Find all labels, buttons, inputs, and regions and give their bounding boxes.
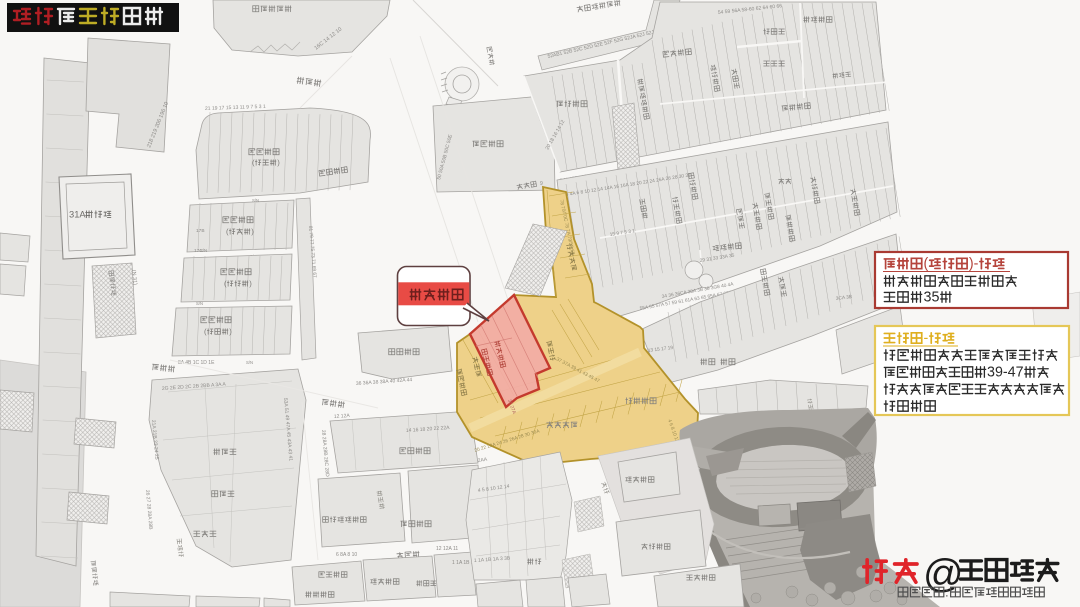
svg-text:)-: )- xyxy=(969,256,979,272)
svg-text:(: ( xyxy=(226,227,229,236)
svg-text:(: ( xyxy=(204,327,207,336)
svg-text::: : xyxy=(945,584,949,599)
svg-text:(: ( xyxy=(224,279,227,288)
svg-text:17B: 17B xyxy=(196,228,205,234)
svg-text:31A: 31A xyxy=(69,209,86,219)
svg-text:S/N: S/N xyxy=(246,360,253,365)
svg-text:(: ( xyxy=(252,158,255,167)
svg-text:): ) xyxy=(249,279,252,288)
svg-text:): ) xyxy=(277,158,280,167)
svg-text:12 12A 11: 12 12A 11 xyxy=(436,546,458,552)
svg-text:): ) xyxy=(251,227,254,236)
svg-text:-: - xyxy=(924,331,929,347)
svg-text:17C: 17C xyxy=(194,248,203,254)
svg-text:(: ( xyxy=(924,256,929,272)
svg-text:12 12A: 12 12A xyxy=(334,413,351,420)
svg-text:): ) xyxy=(229,327,232,336)
svg-text:39-47: 39-47 xyxy=(987,365,1024,381)
svg-text:35: 35 xyxy=(924,290,940,306)
svg-text:S/N: S/N xyxy=(252,198,259,203)
svg-text:S/N: S/N xyxy=(196,301,203,306)
svg-text:6 8A 8 10: 6 8A 8 10 xyxy=(336,552,357,558)
